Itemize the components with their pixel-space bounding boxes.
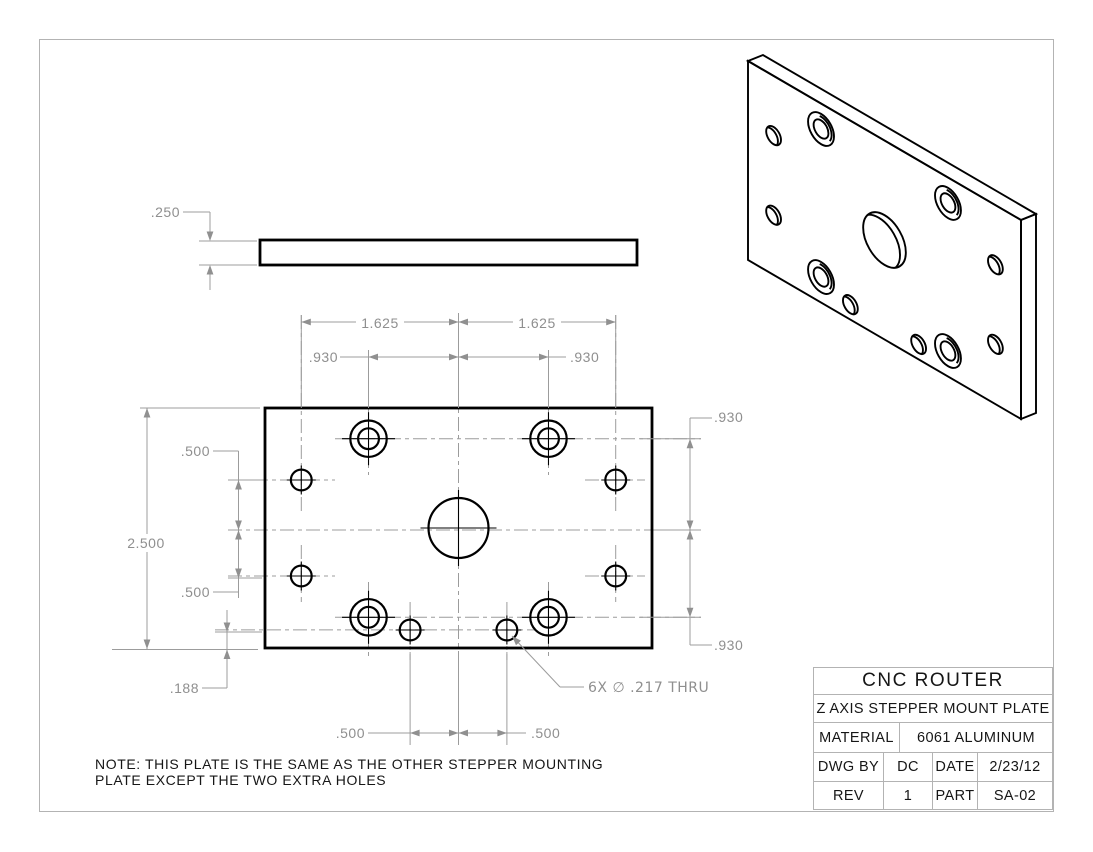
- hole-callout: 6X ∅ .217 THRU: [588, 680, 709, 696]
- dwg-by-label: DWG BY: [814, 753, 884, 781]
- dim-right-bottom-930: .930: [714, 637, 743, 653]
- dim-right-top-930: .930: [714, 409, 743, 425]
- material-label: MATERIAL: [814, 723, 900, 752]
- part-label: PART: [933, 782, 978, 809]
- rev-label: REV: [814, 782, 884, 809]
- dim-bottom-left-500: .500: [336, 725, 365, 741]
- dim-left-top-500: .500: [181, 443, 210, 459]
- dim-bottom-right-500: .500: [531, 725, 560, 741]
- note-line-1: NOTE: THIS PLATE IS THE SAME AS THE OTHE…: [95, 757, 603, 773]
- date-value: 2/23/12: [978, 753, 1052, 781]
- dim-upper-right-930: .930: [570, 349, 599, 365]
- part-value: SA-02: [978, 782, 1052, 809]
- front-view: [112, 232, 712, 748]
- iso-front-face: [748, 61, 1021, 419]
- dim-left-bottom-500: .500: [181, 584, 210, 600]
- iso-right-face: [1021, 214, 1036, 419]
- iso-top-face: [748, 55, 1036, 220]
- thickness-dimension: [183, 212, 257, 290]
- dim-overall-height: 2.500: [127, 535, 165, 551]
- dim-top-left-1625: 1.625: [361, 315, 399, 331]
- date-label: DATE: [933, 753, 978, 781]
- side-view: [183, 212, 637, 290]
- dim-bottom-188: .188: [170, 680, 199, 696]
- drawing-sheet: .250 1.625 1.625 .930 .930 .930 .930 .50…: [0, 0, 1093, 852]
- dwg-by-value: DC: [884, 753, 933, 781]
- isometric-view: [748, 55, 1036, 419]
- title-block-subtitle: Z AXIS STEPPER MOUNT PLATE: [814, 695, 1052, 722]
- drawing-note: NOTE: THIS PLATE IS THE SAME AS THE OTHE…: [95, 757, 603, 788]
- dimension-arrows: [144, 232, 694, 737]
- title-block: CNC ROUTER Z AXIS STEPPER MOUNT PLATE MA…: [813, 667, 1053, 810]
- title-block-title: CNC ROUTER: [814, 668, 1052, 694]
- dim-top-right-1625: 1.625: [518, 315, 556, 331]
- dim-upper-left-930: .930: [309, 349, 338, 365]
- rev-value: 1: [884, 782, 933, 809]
- dim-side-thickness: .250: [151, 204, 180, 220]
- material-value: 6061 ALUMINUM: [900, 723, 1052, 752]
- note-line-2: PLATE EXCEPT THE TWO EXTRA HOLES: [95, 773, 603, 789]
